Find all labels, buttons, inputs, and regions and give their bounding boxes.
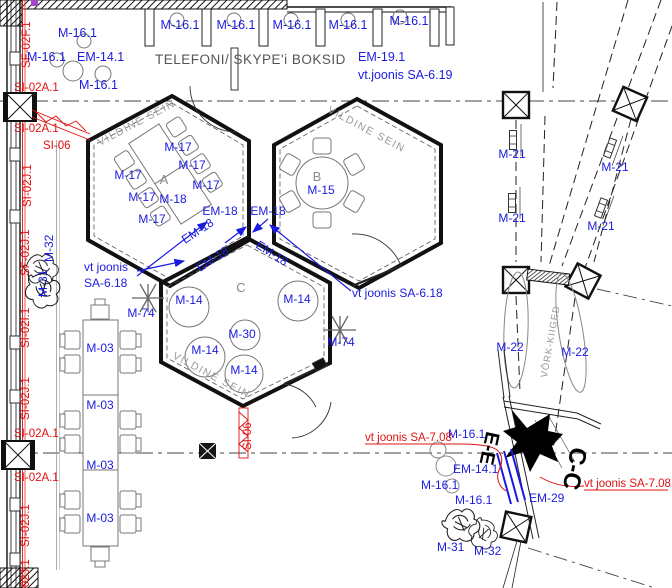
room-letter-a: A — [160, 172, 169, 187]
table-seg-label: M-03 — [86, 511, 114, 525]
plant-m32-label: M-32 — [42, 234, 56, 262]
corner-em14-label: EM-14.1 — [77, 50, 124, 64]
mark-si02j: SI-02J.1 — [20, 504, 32, 547]
light-label: M-21 — [587, 219, 615, 233]
mark-si02j-clipped: SI-02J.1 — [20, 559, 32, 588]
room-letter-b: B — [313, 169, 322, 184]
swing-wall-text: VÕRK-KIIGED — [539, 304, 563, 378]
section-m16-label: M-16.1 — [421, 478, 459, 492]
plant-label: M-74 — [127, 306, 155, 320]
swing-label: M-22 — [561, 345, 589, 359]
booth-label: M-16.1 — [161, 18, 200, 32]
wall-text-b: VILDINE SEIN — [326, 104, 408, 155]
door-mark-si06: SI-06 — [242, 423, 254, 451]
chair-label-a: M-17 — [192, 178, 220, 192]
table-seg-label: M-03 — [86, 458, 114, 472]
corner-m16-label: M-16.1 — [58, 26, 97, 40]
beanbag-label-c: M-14 — [230, 363, 258, 377]
light-label: M-21 — [498, 211, 526, 225]
booth-label: M-16.1 — [217, 18, 256, 32]
mark-si02j: SI-02J.1 — [22, 164, 34, 207]
mark-si02j: SI-02J.1 — [20, 377, 32, 420]
em18-label: EM-18 — [250, 204, 286, 218]
ref-sa618-line2: SA-6.18 — [84, 276, 128, 290]
section-m16-label: M-16.1 — [448, 427, 486, 441]
section-ref-708: vt joonis SA-7.08 — [365, 432, 452, 444]
chair-label-a: M-17 — [128, 190, 156, 204]
table-seg-label: M-03 — [86, 341, 114, 355]
light-label: M-21 — [498, 147, 526, 161]
section-em14-label: EM-14.1 — [453, 462, 499, 476]
beanbag-label-c: M-14 — [191, 343, 219, 357]
table-label-a: M-18 — [159, 192, 187, 206]
small-column — [199, 443, 216, 459]
plant-scribble-br-1 — [442, 509, 480, 541]
mark-sf02f: SF-02F.1 — [21, 21, 33, 68]
chair-label-a: M-17 — [178, 158, 206, 172]
beanbag-label-c: M-14 — [283, 292, 311, 306]
section-em29-label: EM-29 — [529, 491, 565, 505]
booth-label: M-16.1 — [390, 14, 429, 28]
mark-si02a: SI-02A.1 — [14, 123, 59, 135]
ref-sa618-right: vt joonis SA-6.18 — [352, 286, 443, 300]
table-label-b: M-15 — [307, 183, 335, 197]
section-m32-label: M-32 — [474, 544, 502, 558]
mark-si02a: SI-02A.1 — [14, 472, 59, 484]
beanbag-label-c: M-14 — [175, 293, 203, 307]
ref-sa618-line1: vt joonis — [84, 260, 128, 274]
section-m16-label: M-16.1 — [455, 493, 493, 507]
plant-m31-label: M-31 — [36, 269, 50, 297]
table-seg-label: M-03 — [86, 398, 114, 412]
doors-room-c — [284, 358, 331, 438]
wall-column-top — [3, 93, 37, 121]
mark-sf02j: SF-02J.1 — [20, 229, 32, 276]
section-ref-708: vt joonis SA-7.08 — [584, 478, 671, 490]
booth-title: TELEFONI/ SKYPE'i BOKSID — [155, 52, 346, 67]
magenta-wall-tick — [31, 0, 38, 6]
wall-column-bottom — [1, 441, 35, 469]
room-letter-c: C — [236, 280, 245, 295]
swing-label: M-22 — [496, 340, 524, 354]
mark-si06: SI-06 — [43, 140, 71, 152]
mark-si02a: SI-02A.1 — [14, 82, 59, 94]
light-label: M-21 — [601, 160, 629, 174]
booth-label: M-16.1 — [273, 18, 312, 32]
pouf-label-c: M-30 — [228, 327, 256, 341]
floor-plan-page: TELEFONI/ SKYPE'i BOKSID M-16.1 M-16.1 M… — [0, 0, 672, 588]
em19-label: EM-19.1 — [358, 50, 405, 64]
mark-si02i: SI-02I.1 — [20, 308, 32, 348]
swing-beam — [527, 269, 570, 285]
mark-si02a: SI-02A.1 — [14, 428, 59, 440]
em18-label: EM-18 — [194, 243, 232, 274]
chair-label-a: M-17 — [114, 168, 142, 182]
em19-ref: vt.joonis SA-6.19 — [358, 68, 453, 82]
corner-m16-label: M-16.1 — [79, 78, 118, 92]
plant-label: M-74 — [327, 335, 355, 349]
floor-plan-drawing: TELEFONI/ SKYPE'i BOKSID M-16.1 M-16.1 M… — [0, 0, 672, 588]
left-long-table — [60, 299, 141, 567]
booth-label: M-16.1 — [329, 18, 368, 32]
section-m31-label: M-31 — [437, 540, 465, 554]
chair-label-a: M-17 — [138, 212, 166, 226]
chair-label-a: M-17 — [164, 140, 192, 154]
